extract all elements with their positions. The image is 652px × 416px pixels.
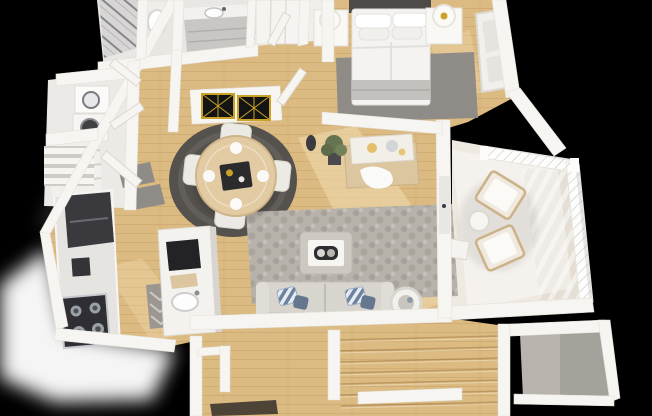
media-console [344,134,419,189]
gold-lattice-mirror [202,94,234,118]
railing-post [480,146,488,160]
tray-ball [327,249,335,257]
entry-closet-wall [220,346,230,392]
door-handle [442,204,446,208]
console-artwork [350,134,414,164]
lamp-base [441,13,448,20]
plant-foliage [321,144,333,156]
vanity [183,4,252,52]
bed-pillow [392,27,422,39]
nightstand-right [426,5,462,44]
bed [349,0,431,105]
washer-door [83,92,99,108]
bath-divider-wall [136,0,148,60]
closet-right-wall [298,0,310,46]
tray-ball [317,249,325,257]
floorplan-svg [0,0,652,416]
bed-pillow [355,14,391,28]
side-table-mirror [398,295,414,311]
island-faucet [195,291,200,296]
bath-divider-wall [172,0,184,52]
island-sink [172,293,198,311]
ottoman-coffee-table [300,232,352,274]
artwork-paint [386,140,398,152]
place-setting [257,170,269,182]
storage-bottom-wall [514,394,614,406]
artwork-paint [367,143,377,153]
table-centerpiece [219,161,252,191]
balcony-round-table [469,211,489,231]
gold-lattice-mirror [238,96,270,120]
stove-burner-center [93,306,98,311]
stairs-divider-wall [328,330,340,400]
railing-post [570,158,579,172]
vanity-faucet [222,7,226,11]
island-black-panel [166,239,201,271]
stairs-right-wall [498,324,510,416]
bedroom-left-wall [322,0,334,62]
stove-burner-center [74,309,79,314]
place-setting [230,198,242,210]
bath-divider-wall [246,0,256,48]
vanity-sink [205,8,223,18]
stove-burner-center [95,326,101,332]
side-table-decor [407,297,413,303]
artwork-paint [399,149,406,156]
bed-pillow [359,28,389,40]
place-setting [203,170,215,182]
floorplan-render [0,0,652,416]
plant-foliage [335,144,347,156]
floor-vase [306,135,316,151]
counter-appliance [71,257,90,276]
bed-pillow [393,13,427,27]
place-setting [230,142,242,154]
balcony-sliding-door [439,176,450,234]
